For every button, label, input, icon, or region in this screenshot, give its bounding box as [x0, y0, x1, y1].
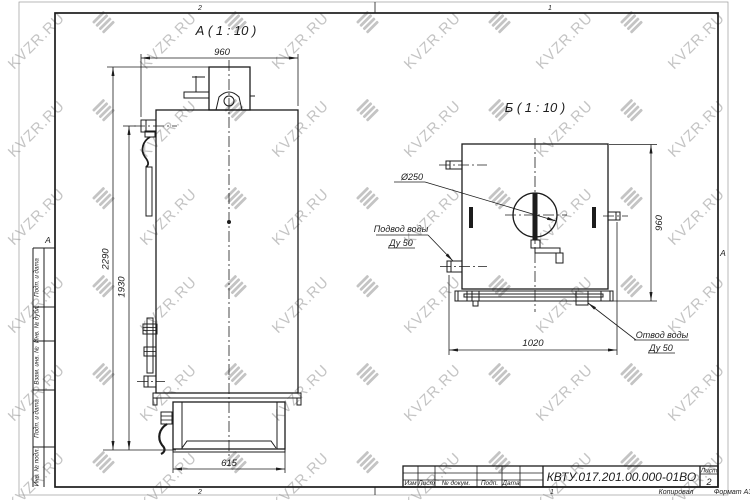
boiler-assembly-drawing: KVZR.RU 2 1 2 1 Копировал Формат А3 А А	[0, 0, 750, 500]
right-damper-bar	[592, 207, 596, 228]
copied-label: Копировал	[659, 489, 694, 496]
zone-bottom-right: 1	[550, 489, 554, 496]
title-block-col-podp: Подп.	[481, 479, 498, 487]
title-block-col-ndokum: № докум.	[442, 479, 471, 487]
sheet-number: 2	[705, 477, 711, 487]
title-block-col-list: Лист	[417, 480, 435, 487]
margin-label-inv-dubl: Инв. № дубл.	[34, 305, 41, 343]
svg-text:1020: 1020	[522, 338, 544, 349]
water-inlet-callout-line1: Подвод воды	[374, 224, 429, 234]
format-label: Формат А3	[714, 489, 750, 496]
fold-letter-left: А	[44, 235, 51, 245]
margin-label-podp-data-1: Подп. и дата	[34, 258, 41, 297]
svg-text:Ø250: Ø250	[400, 172, 423, 182]
watermark-layer	[0, 0, 750, 500]
center-point-mark	[227, 220, 231, 224]
svg-text:2290: 2290	[101, 248, 112, 271]
title-block-col-izm: Изм	[404, 480, 417, 487]
sheet-label: Лист	[700, 468, 718, 475]
title-block-col-data: Дата	[501, 480, 520, 487]
zone-top-right: 1	[548, 5, 552, 12]
view-a-title: А ( 1 : 10 )	[195, 23, 257, 38]
damper-rod	[533, 193, 538, 240]
zone-top-left: 2	[197, 5, 202, 12]
left-damper-bar	[469, 207, 473, 228]
doc-number: КВТУ.017.201.00.000-01ВО	[547, 470, 697, 484]
drawing-sheet: KVZR.RU 2 1 2 1 Копировал Формат А3 А А	[0, 0, 750, 500]
water-inlet-callout-line2: Ду 50	[388, 238, 412, 248]
margin-label-podp-data-2: Подп. и дата	[34, 399, 41, 438]
svg-text:960: 960	[654, 214, 665, 231]
water-outlet-callout-line2: Ду 50	[648, 343, 672, 353]
water-outlet-callout-line1: Отвод воды	[636, 330, 689, 340]
svg-text:1930: 1930	[117, 276, 128, 298]
fold-letter-right: А	[719, 248, 726, 258]
zone-bottom-left: 2	[197, 489, 202, 496]
view-b-title: Б ( 1 : 10 )	[505, 100, 565, 115]
margin-label-inv-podl: Инв. № подл.	[34, 448, 41, 486]
svg-text:960: 960	[214, 47, 231, 58]
margin-label-vzam-inv: Взам. инв. №	[34, 346, 41, 385]
svg-text:615: 615	[221, 458, 238, 469]
